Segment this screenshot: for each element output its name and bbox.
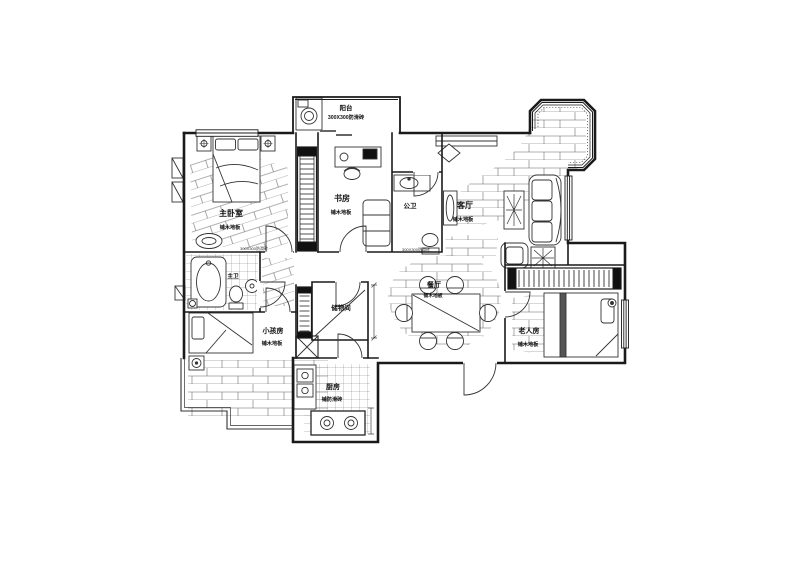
wardrobe-master-study [298, 147, 317, 251]
floor-plan-canvas: 阳台 300X300防滑砖 主卧室 铺木地板 书房 铺木地板 公卫 300X30… [0, 0, 800, 566]
round-sink [246, 280, 259, 293]
svg-text:铺防滑砖: 铺防滑砖 [322, 395, 344, 403]
master-bed [213, 136, 260, 202]
kids-cabinet [189, 356, 204, 370]
svg-text:厨房: 厨房 [326, 382, 340, 391]
study-sofa [363, 200, 390, 246]
wardrobe-hall [298, 287, 312, 338]
svg-text:铺木地板: 铺木地板 [331, 208, 353, 216]
floor-plan: 阳台 300X300防滑砖 主卧室 铺木地板 书房 铺木地板 公卫 300X30… [0, 0, 800, 566]
svg-text:客厅: 客厅 [456, 200, 473, 210]
stove [311, 411, 365, 435]
floor-drain [188, 299, 197, 308]
desk-chair [344, 168, 360, 180]
svg-text:储物间: 储物间 [330, 303, 351, 312]
dining-table [412, 294, 480, 332]
room-label-kids-room: 小孩房 铺木地板 [262, 326, 284, 347]
nightstand-right [261, 136, 275, 151]
door-kitchen [338, 334, 362, 358]
svg-text:300X300防滑砖: 300X300防滑砖 [328, 113, 365, 121]
bath-vanity [394, 175, 430, 191]
svg-text:公卫: 公卫 [404, 202, 418, 210]
room-label-study: 书房 铺木地板 [331, 193, 353, 216]
window-master-top [196, 130, 258, 137]
svg-text:300X300防滑砖: 300X300防滑砖 [240, 245, 268, 251]
svg-text:铺木地板: 铺木地板 [423, 292, 442, 299]
svg-text:餐厅: 餐厅 [426, 280, 441, 289]
dresser [196, 234, 222, 249]
door-entry [464, 363, 496, 395]
svg-text:主卧室: 主卧室 [219, 208, 243, 218]
wall-shelf [436, 136, 497, 146]
room-label-balcony: 阳台 300X300防滑砖 [328, 103, 365, 121]
svg-text:铺木地板: 铺木地板 [518, 340, 540, 348]
washing-machine [296, 98, 322, 130]
svg-text:铺木地板: 铺木地板 [262, 339, 284, 347]
svg-text:主卫: 主卫 [227, 272, 239, 280]
wardrobe-elder [508, 268, 621, 289]
svg-text:铺木地板: 铺木地板 [453, 215, 475, 223]
elder-bed [544, 293, 618, 357]
room-label-storage: 储物间 [330, 303, 351, 312]
door-study [340, 226, 366, 252]
desk [335, 147, 381, 167]
svg-text:书房: 书房 [334, 193, 350, 203]
window-elder-right [622, 300, 629, 348]
svg-text:阳台: 阳台 [340, 103, 354, 112]
door-storage [336, 282, 360, 306]
master-toilet [229, 286, 243, 309]
svg-text:老人房: 老人房 [518, 326, 540, 335]
storage-shelf [315, 290, 365, 336]
svg-text:小孩房: 小孩房 [262, 326, 284, 335]
kitchen-counter [294, 365, 316, 409]
window-living-right [565, 176, 572, 240]
sofa [529, 175, 561, 245]
kids-bed [189, 313, 253, 353]
svg-text:300X300防滑砖: 300X300防滑砖 [402, 246, 430, 252]
svg-text:铺木地板: 铺木地板 [220, 223, 242, 231]
nightstand-left [197, 136, 211, 151]
coffee-table [504, 191, 524, 229]
